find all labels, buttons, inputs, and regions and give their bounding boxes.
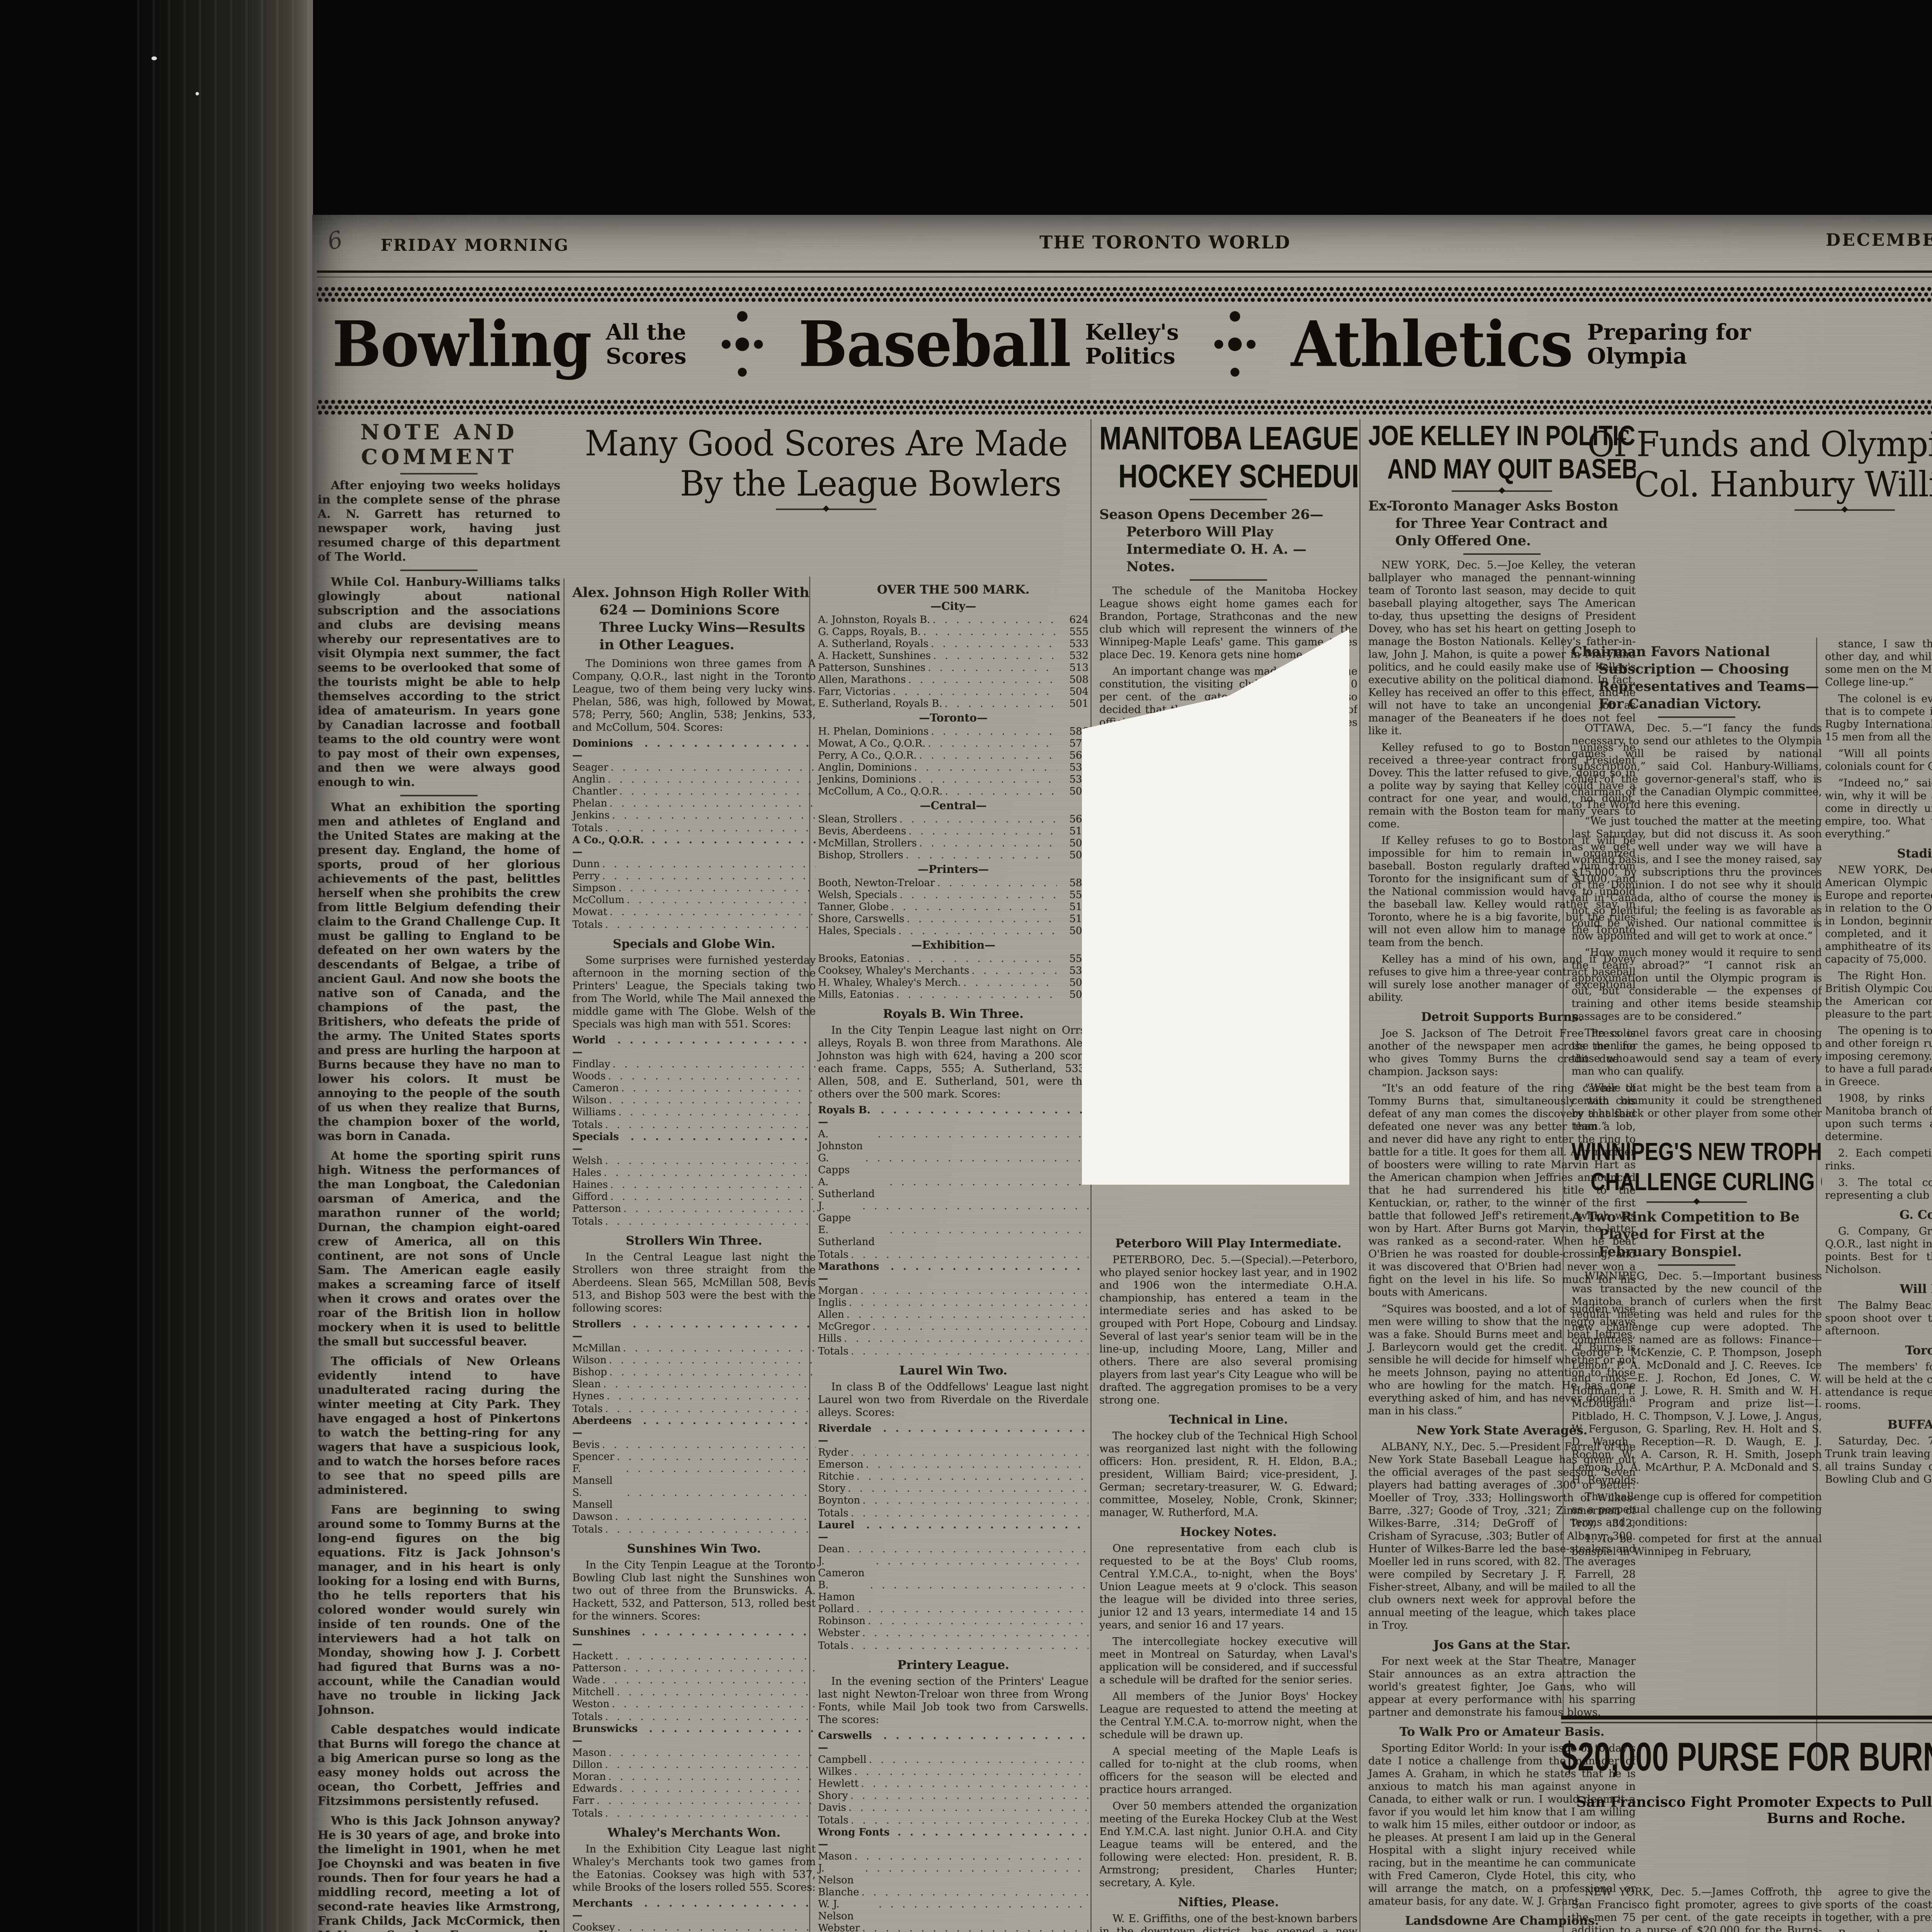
divider-rule: [400, 570, 478, 571]
player-name: J. Nelson: [818, 1862, 863, 1886]
score-list-row: Shore, Carswells. . . . . . . . . . . . …: [818, 913, 1088, 925]
leader-dots: . . . . . . . . . . . . . . . . . . . . …: [605, 1155, 816, 1167]
leader-dots: . . . . . . . . . . . . . . . . . . . . …: [889, 1176, 1088, 1200]
player-name: Perry, A Co., Q.O.R.: [818, 750, 917, 762]
table-header: Strollers—. . . . . . . . . . . . . . . …: [572, 1318, 816, 1342]
table-row: Hewlett. . . . . . . . . . . . . . . . .…: [818, 1778, 1088, 1790]
paragraph: In the Central League last night the Str…: [572, 1251, 816, 1315]
leader-dots: . . . . . . . . . . . . . . . . . . . . …: [881, 1104, 1088, 1128]
player-name: A Co., Q.O.R.—: [572, 834, 649, 858]
player-name: Totals: [818, 1507, 849, 1519]
table-row: Perry. . . . . . . . . . . . . . . . . .…: [572, 870, 816, 882]
row-name: Totals. . . . . . . . . . . . . . . . . …: [572, 1808, 816, 1820]
leader-dots: . . . . . . . . . . . . . . . . . . . . …: [898, 1827, 1088, 1850]
player-name: Patterson, Sunshines: [818, 662, 925, 674]
leader-dots: . . . . . . . . . . . . . . . . . . . . …: [906, 913, 1057, 925]
row-name: Totals. . . . . . . . . . . . . . . . . …: [572, 1119, 816, 1131]
leader-dots: . . . . . . . . . . . . . . . . . . . . …: [844, 1333, 1088, 1345]
diamond-dots-ornament: [1214, 308, 1256, 381]
paragraph: The Balmy Beach Gun Club will hold their…: [1825, 1299, 1932, 1337]
masthead-date: DECEMBER 6 1907: [1826, 230, 1932, 250]
player-name: Allen: [818, 1309, 844, 1321]
leader-dots: . . . . . . . . . . . . . . . . . . . . …: [609, 1747, 816, 1759]
row-name: Findlay. . . . . . . . . . . . . . . . .…: [572, 1058, 816, 1070]
page-stack-edge: [137, 0, 313, 1932]
table-totals: Totals. . . . . . . . . . . . . . . . . …: [818, 1248, 1088, 1261]
divider-rule: [1658, 1264, 1735, 1266]
paragraph: G. Company, Grenadiers, defeated Maxim B…: [1825, 1225, 1932, 1276]
row-name: Brunswicks—. . . . . . . . . . . . . . .…: [572, 1723, 816, 1747]
subhead: Printery League.: [818, 1658, 1088, 1672]
row-name: Dawson. . . . . . . . . . . . . . . . . …: [572, 1511, 816, 1523]
column-note-and-comment: NOTE AND COMMENTAfter enjoying two weeks…: [318, 417, 560, 1932]
player-name: Moran: [572, 1771, 606, 1783]
scanned-newspaper-screenshot: { "masthead": { "left": "FRIDAY MORNING"…: [0, 0, 1932, 1932]
player-name: Ritchie: [818, 1471, 854, 1483]
leader-dots: . . . . . . . . . . . . . . . . . . . . …: [602, 858, 816, 870]
paragraph: Burns, however, cables that he may remai…: [1825, 1928, 1932, 1932]
paragraph: “How much money would it require to send…: [1571, 946, 1822, 1023]
leader-dots: . . . . . . . . . . . . . . . . . . . . …: [971, 965, 1057, 977]
row-name: Campbell. . . . . . . . . . . . . . . . …: [818, 1754, 1088, 1766]
table-row: Ritchie. . . . . . . . . . . . . . . . .…: [818, 1471, 1088, 1483]
player-name: Strollers—: [572, 1318, 631, 1342]
row-name: Dean. . . . . . . . . . . . . . . . . . …: [818, 1543, 1088, 1555]
row-name: Perry. . . . . . . . . . . . . . . . . .…: [572, 870, 816, 882]
score-list-row: Bevis, Aberdeens. . . . . . . . . . . . …: [818, 825, 1088, 837]
leader-dots: . . . . . . . . . . . . . . . . . . . . …: [602, 870, 816, 882]
table-row: Mowat. . . . . . . . . . . . . . . . . .…: [572, 906, 816, 918]
table-row: Findlay. . . . . . . . . . . . . . . . .…: [572, 1058, 816, 1070]
leader-dots: . . . . . . . . . . . . . . . . . . . . …: [597, 1795, 816, 1807]
player-name: Emerson: [818, 1459, 863, 1471]
scan-speck: [196, 92, 199, 95]
table-row: Mason. . . . . . . . . . . . . . . . . .…: [572, 1747, 816, 1759]
leader-dots: . . . . . . . . . . . . . . . . . . . . …: [623, 1342, 816, 1354]
row-name: J. Cameron. . . . . . . . . . . . . . . …: [818, 1555, 1088, 1579]
table-header: Laurel—. . . . . . . . . . . . . . . . .…: [818, 1519, 1088, 1543]
player-name: Tanner, Globe: [818, 901, 889, 913]
row-name: Totals. . . . . . . . . . . . . . . . . …: [818, 1640, 1088, 1652]
leader-dots: . . . . . . . . . . . . . . . . . . . . …: [609, 798, 816, 810]
row-name: Emerson. . . . . . . . . . . . . . . . .…: [818, 1459, 1088, 1471]
leader-dots: . . . . . . . . . . . . . . . . . . . . …: [896, 989, 1057, 1001]
player-name: Boynton: [818, 1495, 860, 1507]
leader-dots: . . . . . . . . . . . . . . . . . . . . …: [627, 894, 816, 906]
table-row: Robinson. . . . . . . . . . . . . . . . …: [818, 1615, 1088, 1627]
paragraph: OTTAWA, Dec. 5.—“I fancy the funds neces…: [1571, 722, 1822, 811]
table-row: Campbell. . . . . . . . . . . . . . . . …: [818, 1754, 1088, 1766]
row-name: Cooksey. . . . . . . . . . . . . . . . .…: [572, 1922, 816, 1932]
leader-dots: . . . . . . . . . . . . . . . . . . . . …: [861, 1778, 1088, 1790]
player-name: Findlay: [572, 1058, 610, 1070]
row-name: Mowat. . . . . . . . . . . . . . . . . .…: [572, 906, 816, 918]
leader-dots: . . . . . . . . . . . . . . . . . . . . …: [848, 1483, 1088, 1495]
score-list-row: Bishop, Strollers. . . . . . . . . . . .…: [818, 849, 1088, 861]
table-row: Woods. . . . . . . . . . . . . . . . . .…: [572, 1070, 816, 1082]
leader-dots: . . . . . . . . . . . . . . . . . . . . …: [643, 1415, 816, 1439]
leader-dots: . . . . . . . . . . . . . . . . . . . . …: [605, 822, 816, 834]
table-row: S. Mansell. . . . . . . . . . . . . . . …: [572, 1487, 816, 1511]
leader-dots: . . . . . . . . . . . . . . . . . . . . …: [850, 1447, 1088, 1459]
leader-dots: . . . . . . . . . . . . . . . . . . . . …: [851, 1345, 1088, 1357]
player-name: Robinson: [818, 1615, 866, 1627]
leader-dots: . . . . . . . . . . . . . . . . . . . . …: [868, 1615, 1088, 1627]
player-name: McCollum, A Co., Q.O.R.: [818, 786, 942, 798]
player-name: H. Phelan, Dominions: [818, 726, 929, 738]
player-name: Simpson: [572, 882, 616, 894]
leader-dots: . . . . . . . . . . . . . . . . . . . . …: [609, 1366, 816, 1378]
player-name: Mason: [818, 1850, 852, 1862]
subhead: OVER THE 500 MARK.: [818, 583, 1088, 597]
subhead: Hockey Notes.: [1099, 1525, 1357, 1539]
row-name: Wilson. . . . . . . . . . . . . . . . . …: [572, 1354, 816, 1366]
table-row: Williams. . . . . . . . . . . . . . . . …: [572, 1106, 816, 1118]
row-name: Patterson. . . . . . . . . . . . . . . .…: [572, 1662, 816, 1674]
paragraph: The colonel favors great care in choosin…: [1571, 1027, 1822, 1078]
wavy-rule-top: [317, 286, 1932, 303]
score-list-row: McMillan, Strollers. . . . . . . . . . .…: [818, 837, 1088, 849]
leader-dots: . . . . . . . . . . . . . . . . . . . . …: [626, 1463, 816, 1487]
subhead: Sunshines Win Two.: [572, 1542, 816, 1556]
table-row: Hackett. . . . . . . . . . . . . . . . .…: [572, 1650, 816, 1662]
paragraph: The challenge cup is offered for competi…: [1571, 1490, 1822, 1529]
player-name: McCollum: [572, 894, 624, 906]
leader-dots: . . . . . . . . . . . . . . . . . . . . …: [631, 1131, 816, 1155]
headline-line: By the League Bowlers: [565, 463, 1087, 505]
player-name: Slean, Strollers: [818, 813, 897, 825]
row-name: Wade. . . . . . . . . . . . . . . . . . …: [572, 1674, 816, 1686]
player-name: Hales: [572, 1167, 601, 1179]
table-header: Royals B.—. . . . . . . . . . . . . . . …: [818, 1104, 1088, 1128]
leader-dots: . . . . . . . . . . . . . . . . . . . . …: [870, 1579, 1088, 1603]
row-name: Blanche. . . . . . . . . . . . . . . . .…: [818, 1886, 1088, 1898]
leader-dots: . . . . . . . . . . . . . . . . . . . . …: [851, 1507, 1088, 1519]
subhead: BUFFALO, $2.15, RETURN.: [1825, 1418, 1932, 1432]
player-name: Totals: [572, 1711, 603, 1723]
leader-dots: . . . . . . . . . . . . . . . . . . . . …: [862, 1627, 1088, 1639]
row-name: Totals. . . . . . . . . . . . . . . . . …: [572, 1403, 816, 1415]
player-name: Totals: [572, 919, 603, 931]
score-list-row: G. Capps, Royals, B.. . . . . . . . . . …: [818, 626, 1088, 638]
table-row: Simpson. . . . . . . . . . . . . . . . .…: [572, 882, 816, 894]
leader-dots: . . . . . . . . . . . . . . . . . . . . …: [883, 1423, 1088, 1447]
player-name: S. Mansell: [572, 1487, 624, 1511]
subhead: Specials and Globe Win.: [572, 937, 816, 951]
table-row: Webster. . . . . . . . . . . . . . . . .…: [818, 1627, 1088, 1639]
player-name: Totals: [572, 822, 603, 834]
leader-dots: . . . . . . . . . . . . . . . . . . . . …: [854, 1850, 1088, 1862]
table-totals: Totals. . . . . . . . . . . . . . . . . …: [572, 1402, 816, 1415]
table-header: A Co., Q.O.R.—. . . . . . . . . . . . . …: [572, 834, 816, 858]
masthead: 6 FRIDAY MORNING THE TORONTO WORLD DECEM…: [317, 223, 1932, 273]
player-name: Campbell: [818, 1754, 866, 1766]
paragraph: The officials of New Orleans evidently i…: [318, 1354, 560, 1497]
player-name: Welsh, Specials: [818, 889, 897, 901]
purse-headline-block: $20,000 PURSE FOR BURNS-JOHNSON San Fran…: [1561, 1716, 1932, 1827]
column-purse-body-right: agree to give the latter 75 per cent. of…: [1816, 1886, 1932, 1932]
bowling-headline: Many Good Scores Are Made By the League …: [565, 423, 1087, 515]
table-row: Dillon. . . . . . . . . . . . . . . . . …: [572, 1759, 816, 1771]
paragraph: After enjoying two weeks holidays in the…: [318, 478, 560, 564]
leader-dots: . . . . . . . . . . . . . . . . . . . . …: [876, 1555, 1088, 1579]
row-name: Laurel—. . . . . . . . . . . . . . . . .…: [818, 1519, 1088, 1543]
player-name: Bishop: [572, 1366, 607, 1378]
leader-dots: . . . . . . . . . . . . . . . . . . . . …: [605, 1711, 816, 1723]
score-list-row: Hales, Specials. . . . . . . . . . . . .…: [818, 925, 1088, 937]
banner-athletics-sub: Preparing forOlympia: [1587, 320, 1751, 368]
player-name: Shory: [818, 1790, 848, 1802]
table-row: Patterson. . . . . . . . . . . . . . . .…: [572, 1662, 816, 1674]
gothic-headline-line: JOE KELLEY IN POLITICS: [1368, 419, 1587, 452]
divider-rule: [1190, 579, 1267, 581]
row-name: J. Gappe. . . . . . . . . . . . . . . . …: [818, 1200, 1088, 1224]
row-name: Chantler. . . . . . . . . . . . . . . . …: [572, 786, 816, 798]
score-value: 624: [1059, 614, 1088, 626]
row-name: Spencer. . . . . . . . . . . . . . . . .…: [572, 1451, 816, 1463]
table-row: Emerson. . . . . . . . . . . . . . . . .…: [818, 1459, 1088, 1471]
leader-dots: . . . . . . . . . . . . . . . . . . . . …: [879, 1898, 1088, 1922]
player-name: Dean: [818, 1543, 844, 1555]
leader-dots: . . . . . . . . . . . . . . . . . . . . …: [623, 1662, 816, 1674]
player-name: Phelan: [572, 798, 607, 810]
row-name: Totals. . . . . . . . . . . . . . . . . …: [572, 919, 816, 931]
row-name: Ritchie. . . . . . . . . . . . . . . . .…: [818, 1471, 1088, 1483]
score-list-row: H. Whaley, Whaley's Merch.. . . . . . . …: [818, 977, 1088, 989]
player-name: Totals: [572, 1216, 603, 1228]
leader-dots: . . . . . . . . . . . . . . . . . . . . …: [610, 1179, 816, 1191]
leader-dots: . . . . . . . . . . . . . . . . . . . . …: [623, 1203, 816, 1215]
table-row: Anglin. . . . . . . . . . . . . . . . . …: [572, 774, 816, 786]
gothic-headline-line: WINNIPEG'S NEW TROPHY: [1571, 1136, 1777, 1167]
row-name: McCollum. . . . . . . . . . . . . . . . …: [572, 894, 816, 906]
banner-baseball-sub: Kelley'sPolitics: [1085, 320, 1179, 368]
player-name: Mills, Eatonias: [818, 989, 894, 1001]
table-row: Edwards. . . . . . . . . . . . . . . . .…: [572, 1783, 816, 1795]
paragraph: The opening is to be attended by the Kin…: [1825, 1024, 1932, 1088]
leader-dots: . . . . . . . . . . . . . . . . . . . . …: [612, 1698, 816, 1710]
paragraph: WINNIPEG, Dec. 5.—Important business was…: [1571, 1270, 1822, 1486]
player-name: Blanche: [818, 1886, 859, 1898]
player-name: Anglin, Dominions: [818, 762, 912, 774]
player-name: A. Johnston: [818, 1128, 875, 1152]
leader-dots: . . . . . . . . . . . . . . . . . . . . …: [931, 726, 1057, 738]
subhead: Stadium to Seat 75,000.: [1825, 847, 1932, 861]
row-name: Hynes. . . . . . . . . . . . . . . . . .…: [572, 1390, 816, 1402]
divider-rule: [400, 795, 478, 796]
player-name: Story: [818, 1483, 845, 1495]
player-name: Wrong Fonts—: [818, 1827, 895, 1850]
paragraph: Some surprises were furnished yesterday …: [572, 954, 816, 1031]
row-name: Wilkes. . . . . . . . . . . . . . . . . …: [818, 1766, 1088, 1778]
table-row: Moran. . . . . . . . . . . . . . . . . .…: [572, 1771, 816, 1783]
table-totals: Totals. . . . . . . . . . . . . . . . . …: [818, 1507, 1088, 1519]
player-name: Perry: [572, 870, 600, 882]
table-row: Farr. . . . . . . . . . . . . . . . . . …: [572, 1795, 816, 1807]
paragraph: agree to give the latter 75 per cent. of…: [1825, 1886, 1932, 1924]
group-label: —City—: [818, 600, 1088, 612]
row-name: Hales. . . . . . . . . . . . . . . . . .…: [572, 1167, 816, 1179]
player-name: Bishop, Strollers: [818, 849, 903, 861]
deck: Alex. Johnson High Roller With 624 — Dom…: [572, 584, 816, 653]
player-name: A. Sutherland: [818, 1176, 887, 1200]
leader-dots: . . . . . . . . . . . . . . . . . . . . …: [914, 762, 1057, 774]
table-row: Mitchell. . . . . . . . . . . . . . . . …: [572, 1686, 816, 1698]
leader-dots: . . . . . . . . . . . . . . . . . . . . …: [605, 919, 816, 931]
group-label: —Exhibition—: [818, 939, 1088, 951]
leader-dots: . . . . . . . . . . . . . . . . . . . . …: [905, 849, 1057, 861]
row-name: Webster. . . . . . . . . . . . . . . . .…: [818, 1627, 1088, 1639]
player-name: Edwards: [572, 1783, 617, 1795]
leader-dots: . . . . . . . . . . . . . . . . . . . . …: [612, 1058, 816, 1070]
divider-rule: [1463, 553, 1541, 555]
score-value: 508: [1059, 674, 1088, 686]
player-name: Chantler: [572, 786, 617, 798]
leader-dots: . . . . . . . . . . . . . . . . . . . . …: [919, 837, 1057, 849]
paragraph: NEW YORK, Dec. 5.—James Coffroth, the Sa…: [1571, 1886, 1822, 1932]
deck: Ex-Toronto Manager Asks Boston for Three…: [1368, 497, 1636, 549]
leader-dots: . . . . . . . . . . . . . . . . . . . . …: [847, 1543, 1088, 1555]
leader-dots: . . . . . . . . . . . . . . . . . . . . …: [933, 650, 1057, 662]
leader-dots: . . . . . . . . . . . . . . . . . . . . …: [617, 1034, 816, 1058]
player-name: Laurel—: [818, 1519, 864, 1543]
table-header: Carswells—. . . . . . . . . . . . . . . …: [818, 1730, 1088, 1754]
player-name: B. Hamon: [818, 1579, 867, 1603]
player-name: Welsh: [572, 1155, 602, 1167]
group-label: —Central—: [818, 799, 1088, 812]
column-olympic-funds-left: Chairman Favors National Subscription — …: [1563, 638, 1822, 1719]
subhead: Strollers Win Three.: [572, 1234, 816, 1248]
row-name: Dominions—. . . . . . . . . . . . . . . …: [572, 738, 816, 762]
player-name: Slean: [572, 1378, 601, 1390]
leader-dots: . . . . . . . . . . . . . . . . . . . . …: [945, 698, 1057, 710]
diamond-dots-ornament: [721, 308, 764, 381]
score-value: 501: [1059, 698, 1088, 710]
column-olympic-funds-right: stance, I saw the Ottawa College-McGill …: [1816, 638, 1932, 1765]
leader-dots: . . . . . . . . . . . . . . . . . . . . …: [849, 1297, 1088, 1309]
table-row: Chantler. . . . . . . . . . . . . . . . …: [572, 786, 816, 798]
player-name: Brooks, Eatonias: [818, 953, 904, 965]
player-name: Allen, Marathons: [818, 674, 906, 686]
leader-dots: . . . . . . . . . . . . . . . . . . . . …: [603, 1378, 816, 1390]
leader-dots: . . . . . . . . . . . . . . . . . . . . …: [605, 1119, 816, 1131]
row-name: Gifford. . . . . . . . . . . . . . . . .…: [572, 1191, 816, 1203]
table-totals: Totals. . . . . . . . . . . . . . . . . …: [818, 1814, 1088, 1827]
table-row: Jenkins. . . . . . . . . . . . . . . . .…: [572, 810, 816, 821]
leader-dots: . . . . . . . . . . . . . . . . . . . . …: [602, 1439, 816, 1451]
table-row: F. Mansell. . . . . . . . . . . . . . . …: [572, 1463, 816, 1487]
row-name: Totals. . . . . . . . . . . . . . . . . …: [818, 1249, 1088, 1261]
paragraph: “We just touched the matter at the meeti…: [1571, 815, 1822, 942]
leader-dots: . . . . . . . . . . . . . . . . . . . . …: [862, 1922, 1088, 1932]
leader-dots: . . . . . . . . . . . . . . . . . . . . …: [618, 882, 816, 894]
score-list-row: McCollum, A Co., Q.O.R.. . . . . . . . .…: [818, 786, 1088, 798]
score-list-row: Jenkins, Dominions. . . . . . . . . . . …: [818, 774, 1088, 786]
table-row: Webster. . . . . . . . . . . . . . . . .…: [818, 1922, 1088, 1932]
leader-dots: . . . . . . . . . . . . . . . . . . . . …: [851, 1249, 1088, 1261]
player-name: Inglis: [818, 1297, 847, 1309]
paragraph: The intercollegiate hockey executive wil…: [1099, 1635, 1357, 1686]
leader-dots: . . . . . . . . . . . . . . . . . . . . …: [611, 762, 816, 774]
paragraph: Saturday, Dec. 7th, Bowlers' Excursion, …: [1825, 1435, 1932, 1486]
player-name: Sunshines—: [572, 1626, 639, 1650]
leader-dots: . . . . . . . . . . . . . . . . . . . . …: [945, 786, 1057, 798]
group-label: —Toronto—: [818, 711, 1088, 724]
leader-dots: . . . . . . . . . . . . . . . . . . . . …: [928, 662, 1057, 674]
table-row: J. Gappe. . . . . . . . . . . . . . . . …: [818, 1200, 1088, 1224]
player-name: Mitchell: [572, 1686, 614, 1698]
player-name: Davis: [818, 1802, 846, 1814]
leader-dots: . . . . . . . . . . . . . . . . . . . . …: [850, 1790, 1088, 1802]
table-row: Weston. . . . . . . . . . . . . . . . . …: [572, 1698, 816, 1710]
row-name: Totals. . . . . . . . . . . . . . . . . …: [572, 1711, 816, 1723]
row-name: Bishop. . . . . . . . . . . . . . . . . …: [572, 1366, 816, 1378]
leader-dots: . . . . . . . . . . . . . . . . . . . . …: [963, 977, 1057, 989]
player-name: Webster: [818, 1922, 860, 1932]
table-row: Seager. . . . . . . . . . . . . . . . . …: [572, 762, 816, 774]
player-name: Hales, Specials: [818, 925, 896, 937]
player-name: G. Capps: [818, 1152, 863, 1176]
leader-dots: . . . . . . . . . . . . . . . . . . . . …: [645, 738, 816, 762]
row-name: Totals. . . . . . . . . . . . . . . . . …: [818, 1507, 1088, 1519]
masthead-paper-title: THE TORONTO WORLD: [1039, 232, 1291, 253]
table-totals: Totals. . . . . . . . . . . . . . . . . …: [572, 1215, 816, 1228]
gothic-headline-line: HOCKEY SCHEDULE: [1099, 457, 1311, 495]
paragraph: In the City Tenpin League last night on …: [818, 1024, 1088, 1100]
player-name: Williams: [572, 1106, 616, 1118]
table-header: Marathons—. . . . . . . . . . . . . . . …: [818, 1261, 1088, 1285]
player-name: Ryder: [818, 1447, 848, 1459]
subhead: Laurel Win Two.: [818, 1364, 1088, 1378]
paragraph: The Right Hon. Lord Desborough, presiden…: [1825, 969, 1932, 1020]
paragraph: Over 50 members attended the organizatio…: [1099, 1800, 1357, 1889]
score-list-row: Slean, Strollers. . . . . . . . . . . . …: [818, 813, 1088, 825]
table-row: Shory. . . . . . . . . . . . . . . . . .…: [818, 1790, 1088, 1802]
paragraph: “Indeed no,” said the colonel, emphatica…: [1825, 777, 1932, 840]
paragraph: 1. To be competed for first at the annua…: [1571, 1532, 1822, 1558]
paragraph: What an exhibition the sporting men and …: [318, 800, 560, 1143]
table-row: Hynes. . . . . . . . . . . . . . . . . .…: [572, 1390, 816, 1402]
table-row: Wilkes. . . . . . . . . . . . . . . . . …: [818, 1766, 1088, 1778]
leader-dots: . . . . . . . . . . . . . . . . . . . . …: [605, 1524, 816, 1536]
player-name: Totals: [572, 1119, 603, 1131]
score-list-row: Anglin, Dominions. . . . . . . . . . . .…: [818, 762, 1088, 774]
player-name: Haines: [572, 1179, 608, 1191]
row-name: Wilson. . . . . . . . . . . . . . . . . …: [572, 1094, 816, 1106]
leader-dots: . . . . . . . . . . . . . . . . . . . . …: [856, 1603, 1088, 1615]
ornament-rule: [1794, 509, 1895, 511]
player-name: Totals: [572, 1403, 603, 1415]
gothic-headline-line: AND MAY QUIT BASEBALL: [1368, 452, 1587, 486]
leader-dots: . . . . . . . . . . . . . . . . . . . . …: [928, 738, 1057, 750]
row-name: Specials—. . . . . . . . . . . . . . . .…: [572, 1131, 816, 1155]
row-name: Riverdale—. . . . . . . . . . . . . . . …: [818, 1423, 1088, 1447]
table-row: Patterson. . . . . . . . . . . . . . . .…: [572, 1203, 816, 1215]
score-list-row: Patterson, Sunshines. . . . . . . . . . …: [818, 662, 1088, 674]
leader-dots: . . . . . . . . . . . . . . . . . . . . …: [866, 1519, 1088, 1543]
leader-dots: . . . . . . . . . . . . . . . . . . . . …: [891, 1261, 1088, 1285]
row-name: Inglis. . . . . . . . . . . . . . . . . …: [818, 1297, 1088, 1309]
ornament-rule: [1646, 1201, 1747, 1203]
player-name: World—: [572, 1034, 615, 1058]
subhead: Nifties, Please.: [1099, 1895, 1357, 1909]
player-name: Hynes: [572, 1390, 604, 1402]
section-header: NOTE AND COMMENT: [318, 420, 560, 469]
ornament-rule: [1452, 490, 1552, 492]
leader-dots: . . . . . . . . . . . . . . . . . . . . …: [878, 1128, 1088, 1152]
leader-dots: . . . . . . . . . . . . . . . . . . . . …: [642, 1626, 816, 1650]
row-name: A. Johnston. . . . . . . . . . . . . . .…: [818, 1128, 1088, 1152]
